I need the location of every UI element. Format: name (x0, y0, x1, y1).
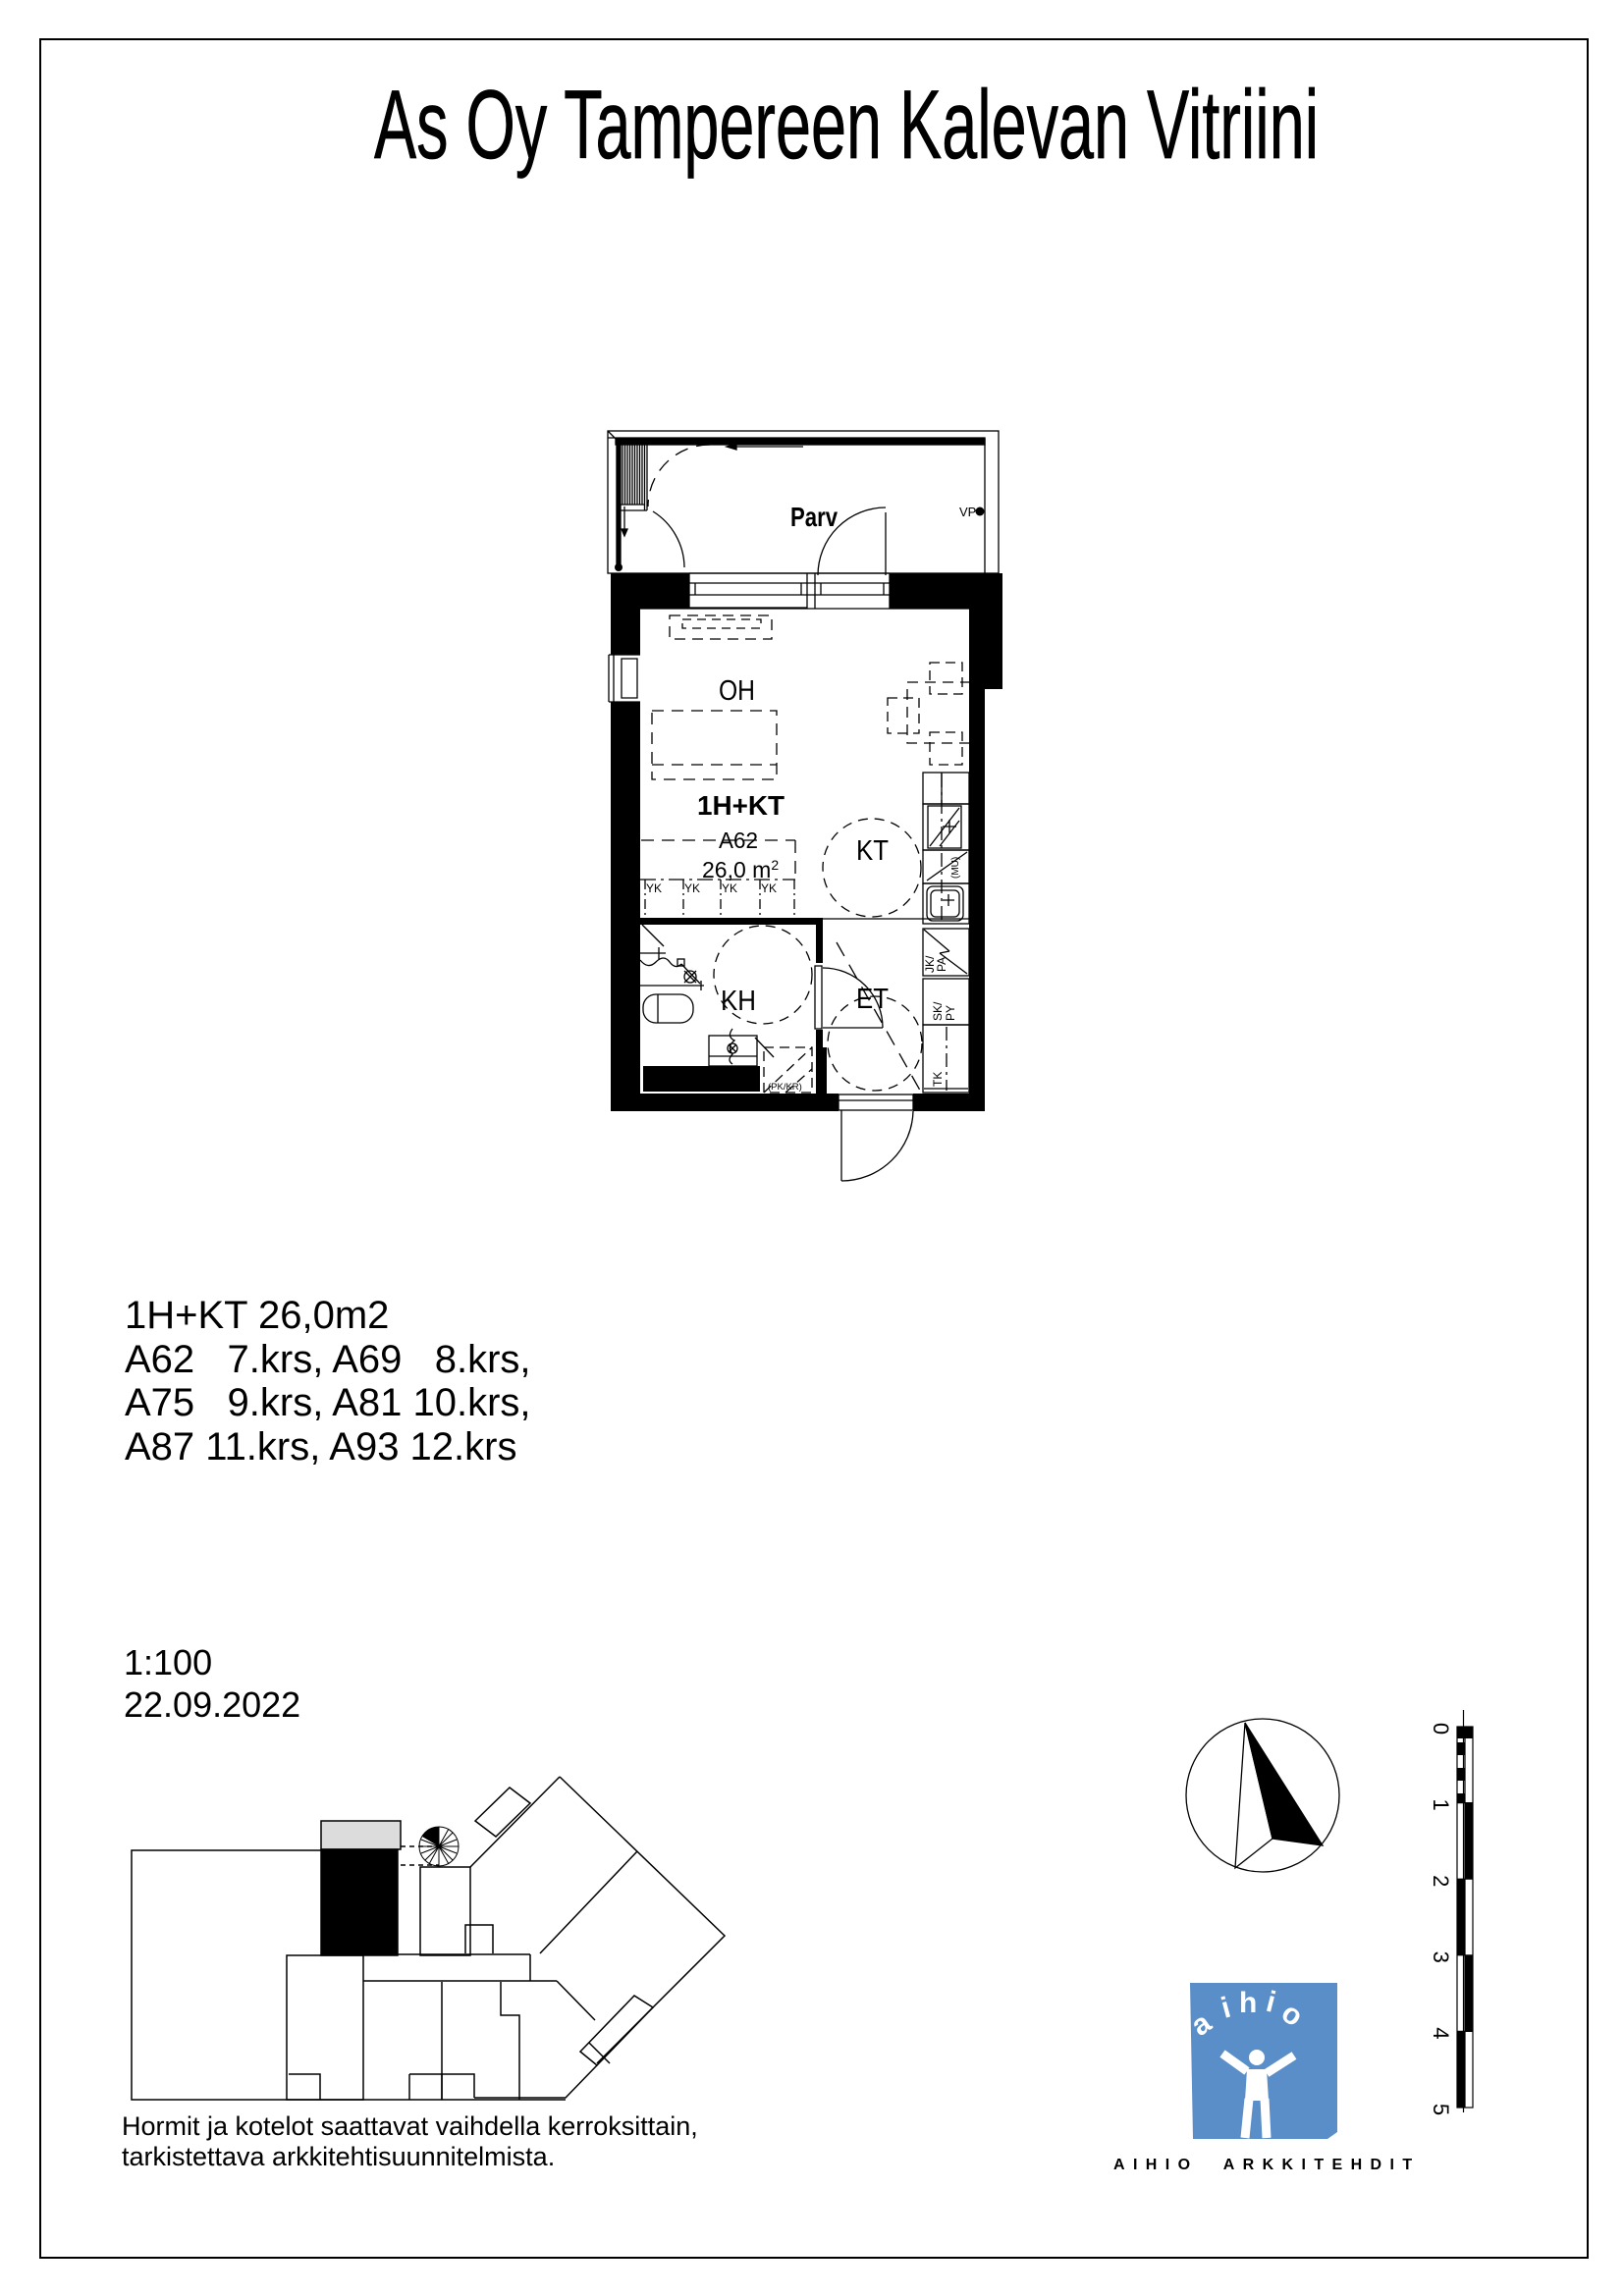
svg-text:1H+KT: 1H+KT (697, 790, 785, 821)
svg-text:PY: PY (944, 1005, 957, 1021)
svg-text:OH: OH (719, 675, 755, 707)
svg-text:ET: ET (856, 984, 889, 1015)
svg-text:SK/: SK/ (931, 1001, 945, 1021)
svg-text:YK: YK (646, 881, 662, 895)
svg-text:(PK/KR): (PK/KR) (768, 1082, 802, 1093)
svg-text:h: h (1239, 1987, 1257, 2019)
svg-text:0: 0 (1429, 1723, 1453, 1735)
svg-text:5: 5 (1429, 2104, 1453, 2115)
svg-text:YK: YK (722, 881, 737, 895)
svg-text:4: 4 (1429, 2027, 1453, 2039)
svg-text:KH: KH (721, 986, 756, 1017)
svg-text:1: 1 (1429, 1798, 1453, 1810)
svg-text:(MU): (MU) (950, 857, 961, 879)
svg-text:2: 2 (1429, 1875, 1453, 1887)
svg-text:26,0 m2: 26,0 m2 (702, 857, 779, 882)
svg-text:KT: KT (856, 835, 889, 867)
svg-text:YK: YK (684, 881, 700, 895)
svg-text:PA: PA (935, 957, 948, 972)
svg-text:3: 3 (1429, 1951, 1453, 1963)
svg-text:Parv: Parv (790, 502, 838, 532)
svg-text:VP: VP (959, 505, 976, 519)
svg-text:TK: TK (931, 1072, 945, 1087)
svg-text:YK: YK (761, 881, 777, 895)
